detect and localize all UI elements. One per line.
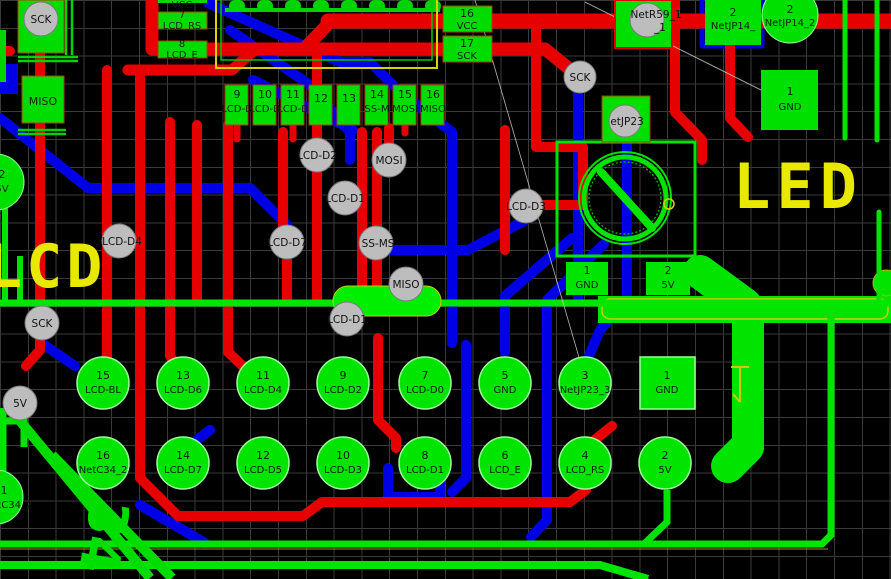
- pad-net: LCD_E: [489, 465, 521, 476]
- green-trace[interactable]: [0, 30, 6, 82]
- via-label: _1: [653, 22, 666, 34]
- silkscreen-lcd-label[interactable]: LCD: [0, 232, 106, 302]
- pad-number: 16: [426, 88, 440, 101]
- pad-number: 13: [176, 369, 190, 382]
- pad-number: 14: [176, 449, 190, 462]
- pad-net: LCD-D1: [406, 465, 444, 476]
- pad[interactable]: [479, 357, 531, 409]
- pad-number: 1: [787, 85, 794, 98]
- blue-trace[interactable]: [40, 342, 75, 366]
- pad-number: 9: [234, 88, 241, 101]
- pad-net: LCD_RS: [163, 21, 202, 32]
- pad-net: NetJP14_: [711, 21, 756, 32]
- pad-number: 8: [179, 39, 185, 50]
- pad-number: 11: [256, 369, 270, 382]
- pad-net: GND: [576, 280, 599, 291]
- pad[interactable]: [157, 357, 209, 409]
- pad-number: 5: [502, 369, 509, 382]
- pad[interactable]: [399, 357, 451, 409]
- via-label: SCK: [31, 14, 53, 26]
- pad[interactable]: [157, 437, 209, 489]
- pad-net: NetJP14_2: [765, 18, 816, 29]
- pad-number: 6: [502, 449, 509, 462]
- via-label: LCD-D4: [102, 236, 142, 248]
- via-label: LCD-D7: [267, 237, 307, 249]
- pad-net: LCD-D5: [244, 465, 282, 476]
- green-layer: 34: [0, 0, 891, 579]
- via-label: LCD-D3: [506, 201, 546, 213]
- pad-net: MISO: [29, 95, 58, 108]
- pad-net: NetJP23_3: [560, 385, 611, 396]
- pad-number: 16: [460, 7, 474, 20]
- pad-number: 10: [336, 449, 350, 462]
- pad-net: GND: [494, 385, 517, 396]
- pad-net: LCD-D4: [244, 385, 282, 396]
- pad-number: 2: [730, 6, 737, 19]
- pad-number: 15: [96, 369, 110, 382]
- pad-number: 11: [286, 88, 300, 101]
- pad[interactable]: [761, 70, 818, 130]
- via-label: etJP23: [610, 116, 643, 128]
- pad-number: 2: [665, 264, 672, 277]
- pad[interactable]: [0, 470, 23, 524]
- copper-text-34[interactable]: 34: [66, 494, 141, 579]
- pad-net: VCC: [457, 21, 478, 32]
- pad-number: 2: [787, 3, 794, 16]
- pad-number: 17: [460, 37, 474, 50]
- green-pad[interactable]: [873, 270, 891, 296]
- pad-number: 1: [584, 264, 591, 277]
- via-label: 5V: [13, 398, 28, 410]
- via-label: MISO: [392, 279, 419, 291]
- via-label: SCK: [570, 72, 592, 84]
- pad-net: LCD-D6: [164, 385, 202, 396]
- pad-number: 4: [582, 449, 589, 462]
- red-trace[interactable]: [170, 122, 179, 368]
- pad-net: LCD-D2: [324, 385, 362, 396]
- pad-net: LCD-D3: [324, 465, 362, 476]
- pad[interactable]: [309, 85, 332, 125]
- left-header: VCC 7 LCD_RS 8 LCD_E: [158, 0, 207, 61]
- pad[interactable]: [77, 357, 129, 409]
- pad-net: MOSI: [392, 104, 418, 115]
- pad[interactable]: [0, 154, 24, 210]
- pad-number: 15: [398, 88, 412, 101]
- pad[interactable]: [237, 357, 289, 409]
- pad[interactable]: [317, 357, 369, 409]
- pad-net: 5V: [658, 465, 671, 476]
- pad-number: 14: [370, 88, 384, 101]
- pad[interactable]: [399, 437, 451, 489]
- red-trace[interactable]: [283, 132, 287, 300]
- pad-net: LCD-BL: [85, 385, 121, 396]
- pad-number: 1: [1, 484, 8, 497]
- pad-net: LCD_RS: [566, 465, 605, 476]
- pad[interactable]: [237, 437, 289, 489]
- pad-number: 1: [664, 369, 671, 382]
- pad-number: 12: [314, 92, 328, 105]
- green-trace[interactable]: [728, 447, 747, 466]
- pad[interactable]: [639, 437, 691, 489]
- pad-number: 7: [179, 10, 185, 21]
- via-label: LCD-D1: [327, 314, 367, 326]
- pad[interactable]: [559, 437, 611, 489]
- green-trace[interactable]: [845, 0, 879, 298]
- silkscreen-led-label[interactable]: LED: [733, 150, 863, 223]
- pad-net: 5V: [0, 184, 9, 195]
- pad-net: LCD_E: [166, 50, 198, 61]
- pad-net: SCK: [457, 51, 477, 62]
- pad[interactable]: [337, 85, 360, 125]
- blue-trace[interactable]: [452, 345, 466, 492]
- via-label: NetR59_1: [630, 9, 681, 21]
- pad-net: LCD-D7: [164, 465, 202, 476]
- pad[interactable]: [77, 437, 129, 489]
- pad-net: GND: [779, 102, 802, 113]
- via-label: LCD-D2: [297, 150, 337, 162]
- pad-number: 13: [342, 92, 356, 105]
- pad-number: 2: [662, 449, 669, 462]
- pad-net: SS-M: [365, 104, 390, 115]
- pad-number: 2: [0, 168, 6, 181]
- pad-number: 3: [582, 369, 589, 382]
- via-label: MOSI: [375, 155, 402, 167]
- pad-number: 9: [340, 369, 347, 382]
- pad-net: NetC34_2: [79, 465, 128, 476]
- via-label: LCD-D1: [325, 193, 365, 205]
- pcb-canvas: 34 1 GND 2 5V: [0, 0, 891, 579]
- pad-number: 8: [422, 449, 429, 462]
- pad[interactable]: [559, 357, 611, 409]
- green-trace[interactable]: [644, 490, 667, 544]
- pad-number: 10: [258, 88, 272, 101]
- pad-net: GND: [656, 385, 679, 396]
- pad-net: NetC34_2: [0, 500, 32, 511]
- pad-number: 12: [256, 449, 270, 462]
- pad-number: 7: [422, 369, 429, 382]
- via-label: SS-MS: [362, 238, 395, 250]
- pad-net: LCD-D0: [406, 385, 444, 396]
- pad-net: 5V: [661, 280, 674, 291]
- red-trace[interactable]: [228, 125, 247, 370]
- red-trace[interactable]: [378, 338, 396, 448]
- pad-net: MISO: [420, 104, 446, 115]
- pad[interactable]: [317, 437, 369, 489]
- pad-net: LCD-D: [277, 104, 309, 115]
- red-trace[interactable]: [100, 70, 107, 368]
- pad-number: 16: [96, 449, 110, 462]
- pad[interactable]: [479, 437, 531, 489]
- pad[interactable]: [640, 357, 695, 409]
- via-label: SCK: [32, 318, 54, 330]
